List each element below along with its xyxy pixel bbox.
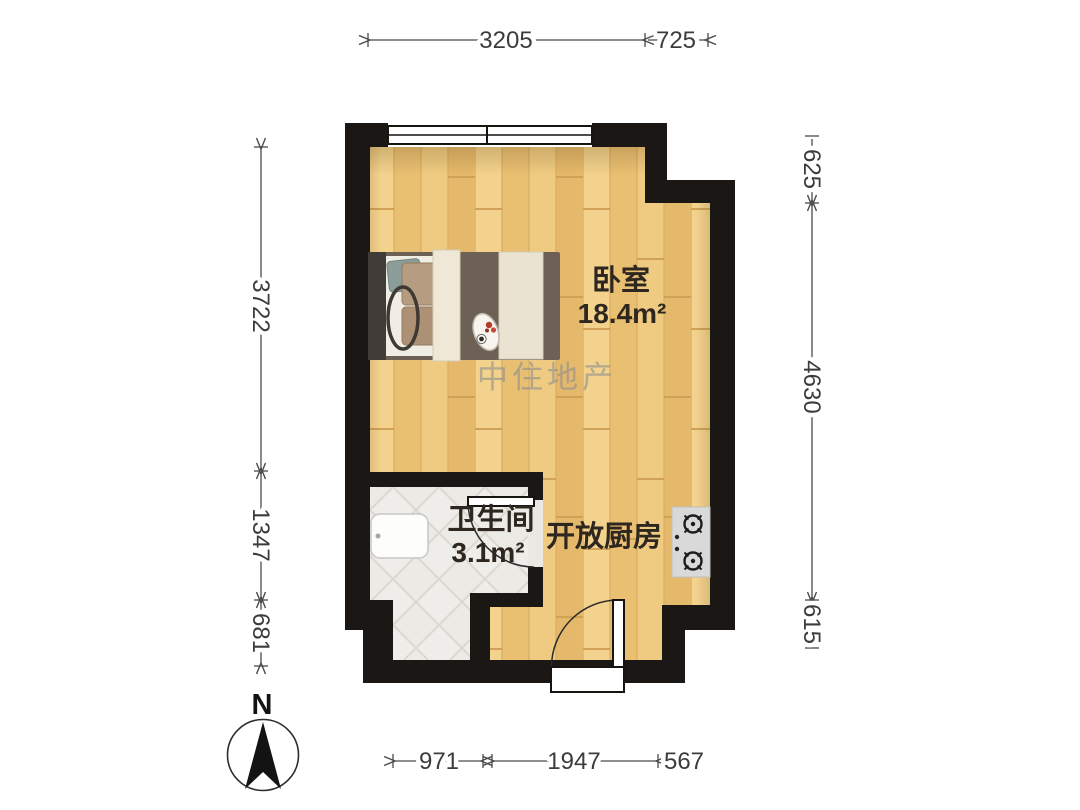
dim-left-3722: 3722 xyxy=(247,279,274,332)
wall-bottom xyxy=(363,660,685,683)
stove-knob-1 xyxy=(675,535,679,539)
dim-top-725: 725 xyxy=(656,27,696,54)
compass-north-label: N xyxy=(252,689,273,721)
bed-runner-2 xyxy=(499,252,543,359)
floorplan-svg: 中住地产 卧室 18.4m² 卫生间 3.1m² 开放厨房 3205 725 3… xyxy=(0,0,1080,810)
floor-shadow-top xyxy=(367,147,645,175)
wall-bathroom-lower-v xyxy=(470,593,490,663)
window xyxy=(388,123,592,147)
wall-right xyxy=(710,180,735,630)
bedroom-name: 卧室 xyxy=(592,263,650,297)
bathroom-area: 3.1m² xyxy=(451,537,524,568)
kitchen-floor-lower xyxy=(490,600,662,660)
dimension-top: 3205 725 xyxy=(368,27,708,54)
bed-tray-flower-2 xyxy=(491,327,496,332)
dim-left-681: 681 xyxy=(247,613,274,653)
bedroom-area: 18.4m² xyxy=(578,298,667,329)
toilet-button xyxy=(376,534,381,539)
wall-left xyxy=(345,123,370,630)
dim-left-1347: 1347 xyxy=(247,508,274,561)
dim-right-625: 625 xyxy=(798,149,825,189)
bed-tray-flower-1 xyxy=(486,322,492,328)
toilet xyxy=(371,514,428,558)
compass-icon: N xyxy=(228,689,299,791)
stove-body xyxy=(672,507,710,577)
bed-tray-cup-inner xyxy=(479,337,484,342)
entry-door-threshold xyxy=(551,667,624,692)
dim-top-3205: 3205 xyxy=(479,27,532,54)
watermark: 中住地产 xyxy=(477,360,617,395)
wall-bathroom-top xyxy=(345,472,543,487)
dimension-bottom: 971 1947 567 xyxy=(393,748,704,775)
entry-door-leaf xyxy=(613,600,624,667)
dim-bottom-567: 567 xyxy=(664,748,704,775)
stove xyxy=(672,507,710,577)
stove-knob-2 xyxy=(675,547,679,551)
dim-right-4630: 4630 xyxy=(798,360,825,413)
wall-bottomleft-step-v xyxy=(363,600,393,683)
bathroom-name: 卫生间 xyxy=(447,503,534,536)
dim-bottom-1947: 1947 xyxy=(547,748,600,775)
dim-right-615: 615 xyxy=(798,604,825,644)
bed-tray-flower-3 xyxy=(485,329,489,333)
kitchen-name: 开放厨房 xyxy=(546,520,662,553)
bed-headboard xyxy=(368,252,386,360)
wall-bathdoor-stub-bottom xyxy=(528,567,543,593)
dimension-right: 625 4630 615 xyxy=(798,136,825,648)
bed xyxy=(368,250,560,361)
dim-bottom-971: 971 xyxy=(419,748,459,775)
dimension-left: 3722 1347 681 xyxy=(247,147,274,666)
bed-runner-1 xyxy=(433,250,460,361)
